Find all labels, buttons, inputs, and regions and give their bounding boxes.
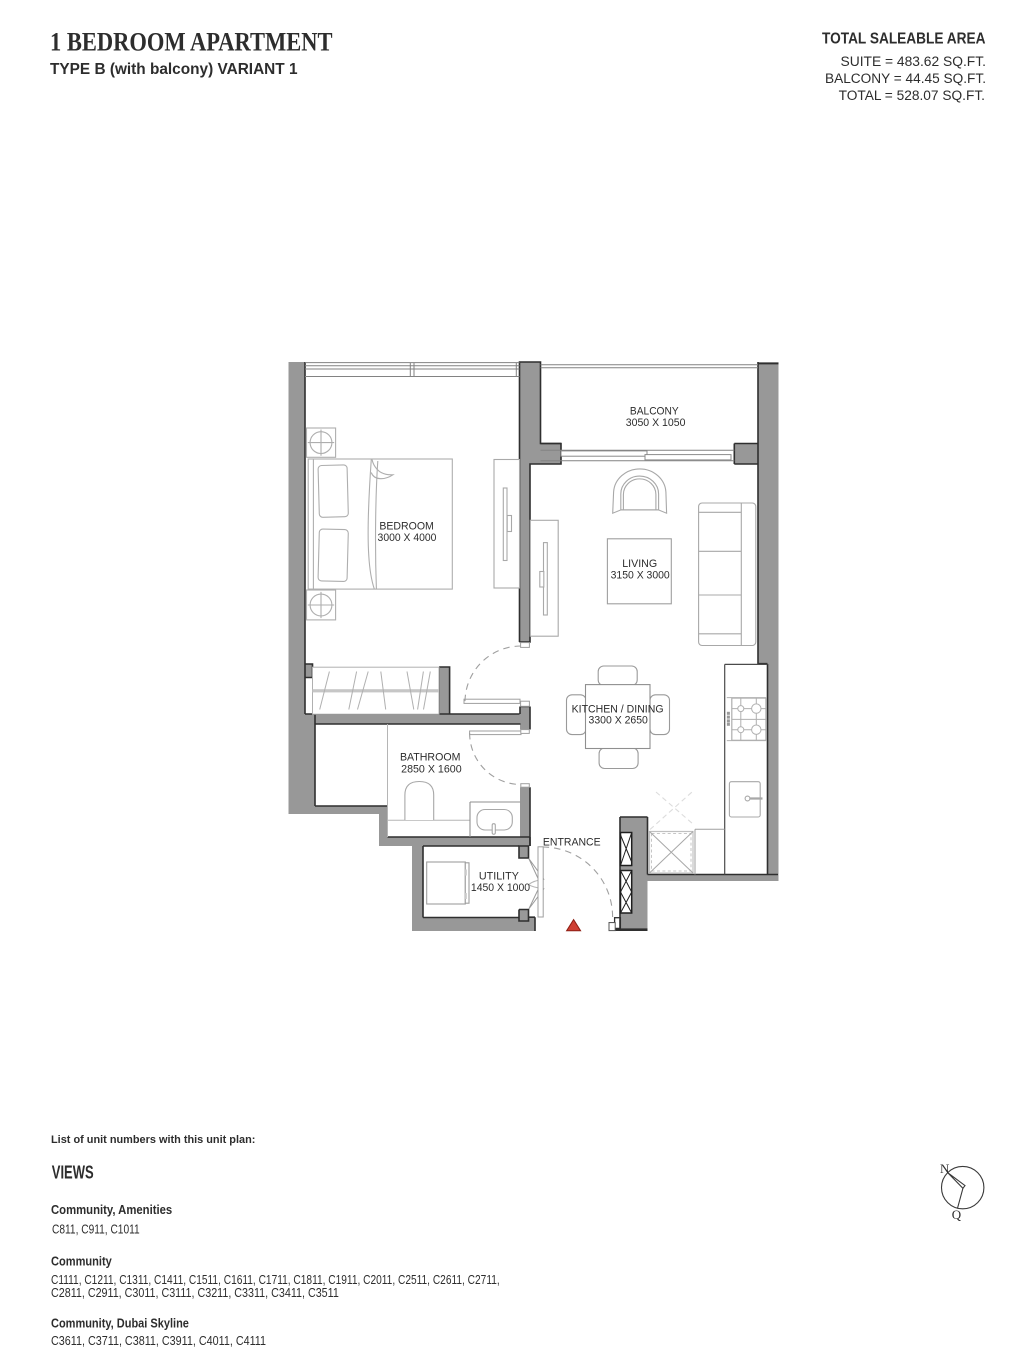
svg-text:ENTRANCE: ENTRANCE bbox=[543, 837, 601, 849]
svg-text:VIEWS: VIEWS bbox=[52, 1162, 94, 1183]
svg-text:TYPE B (with balcony) VARIANT: TYPE B (with balcony) VARIANT 1 bbox=[50, 61, 298, 78]
svg-text:Community, Amenities: Community, Amenities bbox=[51, 1202, 172, 1217]
svg-text:TOTAL = 528.07 SQ.FT.: TOTAL = 528.07 SQ.FT. bbox=[839, 88, 985, 104]
svg-text:C3611, C3711, C3811, C3911, C4: C3611, C3711, C3811, C3911, C4011, C4111 bbox=[51, 1333, 266, 1348]
svg-text:BATHROOM: BATHROOM bbox=[400, 752, 461, 764]
svg-text:N: N bbox=[940, 1161, 950, 1176]
svg-text:Community: Community bbox=[51, 1253, 112, 1268]
svg-text:1450 X 1000: 1450 X 1000 bbox=[471, 882, 530, 894]
svg-text:C2811, C2911, C3011, C3111, C3: C2811, C2911, C3011, C3111, C3211, C3311… bbox=[51, 1285, 339, 1300]
svg-text:List of unit numbers with this: List of unit numbers with this unit plan… bbox=[51, 1134, 255, 1146]
svg-text:3300 X 2650: 3300 X 2650 bbox=[589, 715, 648, 727]
svg-text:LIVING: LIVING bbox=[622, 558, 657, 570]
svg-text:1 BEDROOM APARTMENT: 1 BEDROOM APARTMENT bbox=[50, 27, 333, 57]
svg-text:TOTAL SALEABLE AREA: TOTAL SALEABLE AREA bbox=[822, 30, 986, 47]
svg-text:SUITE = 483.62 SQ.FT.: SUITE = 483.62 SQ.FT. bbox=[841, 54, 987, 70]
svg-text:C811, C911, C1011: C811, C911, C1011 bbox=[52, 1221, 140, 1236]
svg-text:3000 X 4000: 3000 X 4000 bbox=[378, 532, 437, 544]
svg-text:Community, Dubai Skyline: Community, Dubai Skyline bbox=[51, 1316, 189, 1331]
svg-text:3050 X 1050: 3050 X 1050 bbox=[626, 417, 686, 429]
svg-text:Q: Q bbox=[952, 1207, 962, 1222]
svg-text:UTILITY: UTILITY bbox=[479, 871, 519, 883]
svg-text:BALCONY: BALCONY bbox=[630, 405, 679, 417]
svg-text:BALCONY = 44.45 SQ.FT.: BALCONY = 44.45 SQ.FT. bbox=[825, 71, 986, 87]
svg-text:BEDROOM: BEDROOM bbox=[379, 520, 434, 532]
svg-text:3150 X 3000: 3150 X 3000 bbox=[611, 570, 670, 582]
svg-text:2850 X 1600: 2850 X 1600 bbox=[401, 763, 462, 775]
